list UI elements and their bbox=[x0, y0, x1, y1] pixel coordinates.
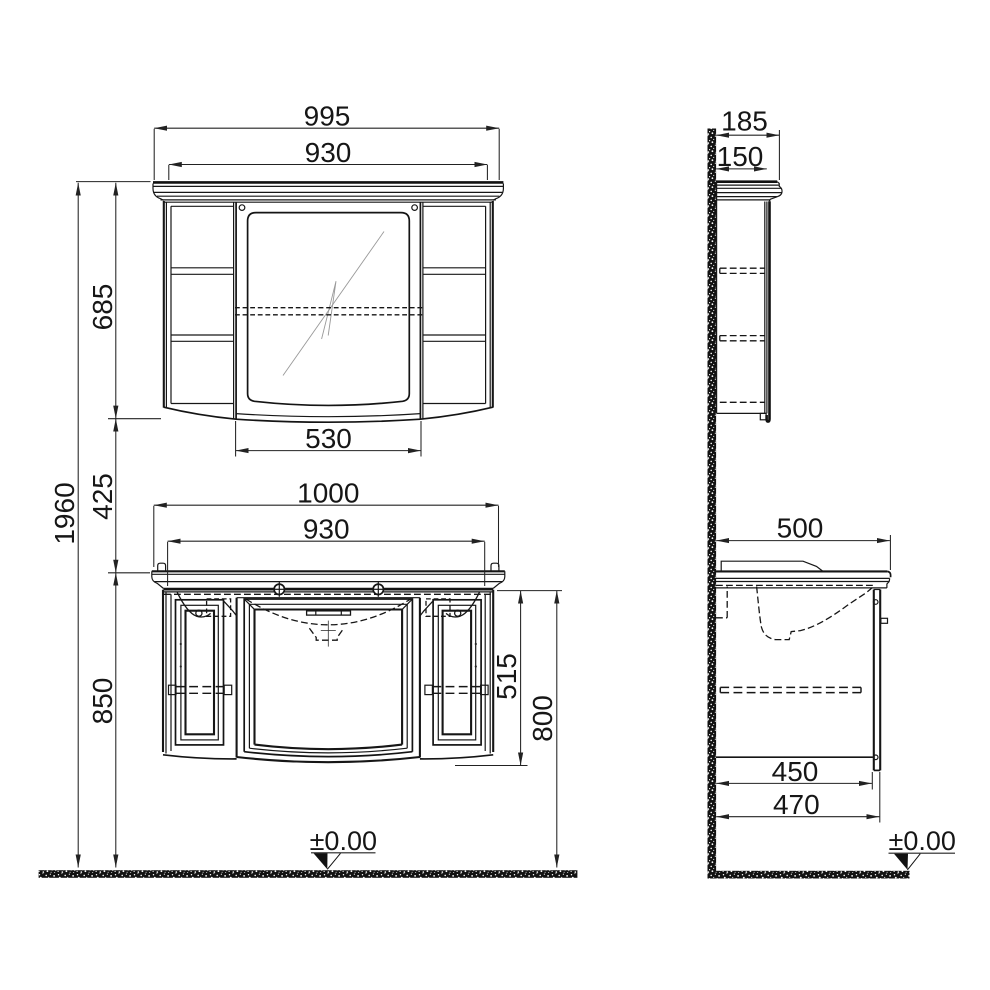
svg-text:±0.00: ±0.00 bbox=[310, 826, 377, 856]
svg-text:1960: 1960 bbox=[49, 482, 80, 544]
svg-text:930: 930 bbox=[305, 137, 352, 168]
svg-text:500: 500 bbox=[777, 513, 824, 544]
svg-text:450: 450 bbox=[772, 756, 819, 787]
svg-text:530: 530 bbox=[305, 423, 352, 454]
svg-text:185: 185 bbox=[721, 106, 768, 137]
svg-text:995: 995 bbox=[304, 101, 351, 132]
svg-text:425: 425 bbox=[87, 473, 118, 520]
svg-text:±0.00: ±0.00 bbox=[889, 826, 956, 856]
svg-text:930: 930 bbox=[303, 514, 350, 545]
svg-text:1000: 1000 bbox=[297, 478, 359, 509]
svg-text:685: 685 bbox=[87, 284, 118, 331]
svg-text:515: 515 bbox=[491, 653, 522, 700]
svg-text:800: 800 bbox=[527, 695, 558, 742]
svg-text:850: 850 bbox=[87, 678, 118, 725]
svg-text:470: 470 bbox=[773, 789, 820, 820]
svg-text:150: 150 bbox=[717, 141, 764, 172]
